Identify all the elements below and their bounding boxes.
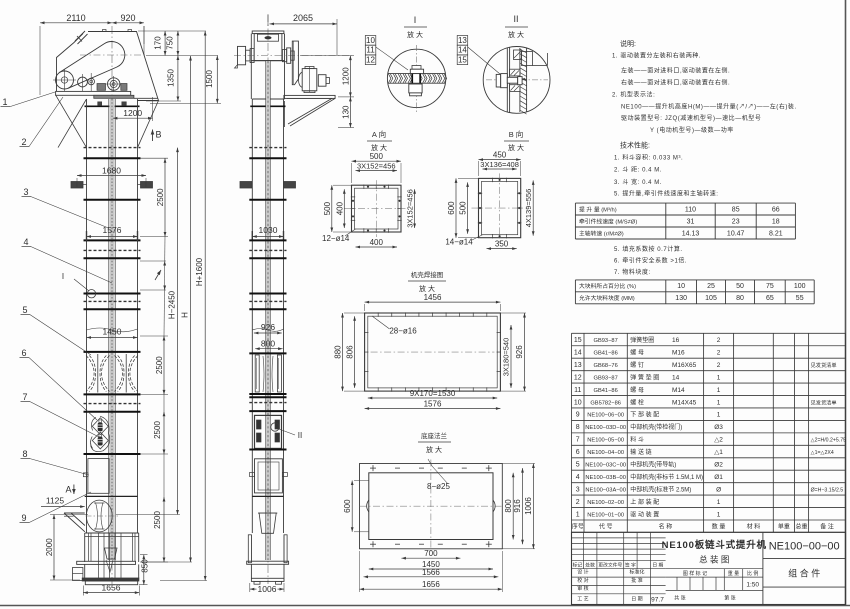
svg-text:总 装 图: 总 装 图 xyxy=(699,555,729,565)
svg-text:3X152=456: 3X152=456 xyxy=(405,189,414,228)
svg-text:1: 1 xyxy=(717,511,721,518)
svg-text:4: 4 xyxy=(23,237,28,247)
svg-text:设 计: 设 计 xyxy=(577,569,588,576)
svg-text:1: 1 xyxy=(717,499,721,506)
svg-text:签 字: 签 字 xyxy=(625,562,636,569)
svg-text:NE100−00−00: NE100−00−00 xyxy=(769,541,840,553)
svg-text:GB93−87: GB93−87 xyxy=(594,375,618,381)
svg-text:5. 填充系数按 0.7计算.: 5. 填充系数按 0.7计算. xyxy=(614,245,683,253)
svg-text:日 期: 日 期 xyxy=(652,563,663,569)
svg-text:3X136=408: 3X136=408 xyxy=(480,160,519,169)
svg-text:Ø=H−3.15/2.5: Ø=H−3.15/2.5 xyxy=(811,487,844,493)
svg-text:2500: 2500 xyxy=(155,356,164,374)
svg-text:下 部 装 配: 下 部 装 配 xyxy=(630,411,659,419)
svg-text:共 张: 共 张 xyxy=(674,595,685,602)
svg-text:1006: 1006 xyxy=(524,497,533,515)
svg-text:总重: 总重 xyxy=(796,523,808,531)
svg-text:16: 16 xyxy=(672,337,680,344)
svg-text:170: 170 xyxy=(154,36,163,50)
svg-text:2065: 2065 xyxy=(293,13,313,23)
svg-text:18: 18 xyxy=(772,218,780,225)
svg-text:日 期: 日 期 xyxy=(631,596,642,602)
svg-text:2110: 2110 xyxy=(66,13,85,23)
svg-text:放 大: 放 大 xyxy=(407,30,423,39)
svg-text:1656: 1656 xyxy=(102,582,121,592)
svg-text:11: 11 xyxy=(366,46,375,55)
svg-text:重 量: 重 量 xyxy=(728,570,739,577)
svg-text:NE100−03A−00: NE100−03A−00 xyxy=(585,487,625,493)
svg-text:1: 1 xyxy=(717,412,721,419)
svg-text:Ø: Ø xyxy=(716,486,721,493)
svg-text:13: 13 xyxy=(574,362,582,369)
svg-text:8: 8 xyxy=(576,424,580,431)
svg-text:螺 栓: 螺 栓 xyxy=(630,398,644,406)
svg-text:数 量: 数 量 xyxy=(712,523,726,531)
svg-text:主轴转速 (r/M≠Ø): 主轴转速 (r/M≠Ø) xyxy=(579,229,624,237)
svg-text:10: 10 xyxy=(574,399,582,406)
svg-text:底座法兰: 底座法兰 xyxy=(421,431,448,440)
svg-text:放 大: 放 大 xyxy=(508,143,524,152)
svg-text:Y (电动机型号)—级数—功率: Y (电动机型号)—级数—功率 xyxy=(650,126,734,134)
svg-text:处数: 处数 xyxy=(585,562,595,569)
svg-text:螺 钉: 螺 钉 xyxy=(630,361,644,369)
svg-text:驱 动 装 置: 驱 动 装 置 xyxy=(630,510,659,518)
svg-text:H: H xyxy=(181,312,190,318)
svg-text:916: 916 xyxy=(513,499,522,513)
svg-text:1: 1 xyxy=(2,97,7,107)
svg-text:4X139=556: 4X139=556 xyxy=(524,189,533,228)
svg-text:GB5782−86: GB5782−86 xyxy=(590,400,621,406)
svg-text:中部机壳(带检视门): 中部机壳(带检视门) xyxy=(630,423,682,431)
svg-text:5. 提升量,牵引件线速度和主轴转速:: 5. 提升量,牵引件线速度和主轴转速: xyxy=(614,189,718,197)
svg-text:130: 130 xyxy=(341,105,350,119)
svg-text:14: 14 xyxy=(672,374,680,381)
svg-text:80: 80 xyxy=(736,295,744,302)
svg-text:GB41−86: GB41−86 xyxy=(594,350,618,356)
svg-text:800: 800 xyxy=(261,339,275,349)
svg-text:1680: 1680 xyxy=(102,166,121,176)
svg-text:名 称: 名 称 xyxy=(659,523,673,531)
svg-text:上 部 装 配: 上 部 装 配 xyxy=(630,498,659,506)
svg-text:图 样 标 记: 图 样 标 记 xyxy=(683,570,707,577)
svg-text:M14: M14 xyxy=(672,387,685,394)
svg-text:1566: 1566 xyxy=(422,568,440,577)
svg-text:15: 15 xyxy=(574,337,582,344)
svg-text:1030: 1030 xyxy=(259,225,278,235)
svg-text:500: 500 xyxy=(370,152,384,161)
svg-text:926: 926 xyxy=(515,345,524,359)
svg-text:55: 55 xyxy=(796,295,804,302)
svg-text:750: 750 xyxy=(166,36,175,50)
svg-text:9X170=1530: 9X170=1530 xyxy=(410,389,456,398)
svg-text:6: 6 xyxy=(21,348,26,358)
svg-text:97.7: 97.7 xyxy=(651,596,664,603)
svg-text:600: 600 xyxy=(447,201,456,215)
svg-text:单重: 单重 xyxy=(778,523,790,531)
svg-text:11: 11 xyxy=(574,387,581,394)
svg-text:代 号: 代 号 xyxy=(599,523,613,531)
svg-text:75: 75 xyxy=(766,283,774,290)
svg-text:NE100板链斗式提升机: NE100板链斗式提升机 xyxy=(662,539,767,551)
svg-text:技术性能:: 技术性能: xyxy=(620,141,650,150)
svg-text:见发货清单: 见发货清单 xyxy=(811,361,837,369)
svg-text:见发货清单: 见发货清单 xyxy=(811,398,837,406)
svg-text:14: 14 xyxy=(574,349,582,356)
svg-text:926: 926 xyxy=(261,322,275,332)
svg-text:3. 斗 宽: 0.4 M.: 3. 斗 宽: 0.4 M. xyxy=(614,178,662,186)
svg-text:中部机壳(带导轨): 中部机壳(带导轨) xyxy=(630,460,676,468)
svg-text:校 对: 校 对 xyxy=(577,577,588,584)
svg-text:说明:: 说明: xyxy=(620,39,636,48)
svg-text:10: 10 xyxy=(366,36,375,45)
svg-text:△2: △2 xyxy=(714,437,723,444)
svg-text:I: I xyxy=(414,15,417,25)
svg-text:大块料所占百分比 (%): 大块料所占百分比 (%) xyxy=(579,282,636,290)
svg-text:放 大: 放 大 xyxy=(371,143,387,152)
svg-text:2500: 2500 xyxy=(153,421,162,439)
svg-text:2500: 2500 xyxy=(156,188,165,206)
svg-text:105: 105 xyxy=(705,295,717,302)
svg-text:螺 母: 螺 母 xyxy=(630,348,644,356)
svg-text:H+1600: H+1600 xyxy=(195,257,204,286)
svg-text:1: 1 xyxy=(717,374,721,381)
svg-text:66: 66 xyxy=(772,206,780,213)
svg-text:9: 9 xyxy=(576,412,580,419)
svg-text:920: 920 xyxy=(120,13,135,23)
svg-text:GB41−86: GB41−86 xyxy=(594,388,618,394)
svg-text:23: 23 xyxy=(732,218,740,225)
svg-text:10.47: 10.47 xyxy=(727,230,745,237)
svg-text:A: A xyxy=(65,485,71,495)
svg-text:I: I xyxy=(62,272,64,281)
svg-text:放 大: 放 大 xyxy=(426,445,442,454)
svg-text:8: 8 xyxy=(22,449,27,459)
svg-text:1200: 1200 xyxy=(341,67,350,85)
svg-text:14: 14 xyxy=(458,46,467,55)
svg-text:中部机壳(标准节 2.5M): 中部机壳(标准节 2.5M) xyxy=(630,485,691,493)
svg-text:1576: 1576 xyxy=(424,400,442,409)
svg-text:13: 13 xyxy=(458,36,467,45)
svg-text:1456: 1456 xyxy=(424,293,442,302)
svg-text:3: 3 xyxy=(23,187,28,197)
svg-text:NE100−02−00: NE100−02−00 xyxy=(587,500,624,506)
svg-text:1: 1 xyxy=(717,387,721,394)
svg-text:GB93−87: GB93−87 xyxy=(594,338,618,344)
svg-text:2: 2 xyxy=(576,499,580,506)
svg-text:放 大: 放 大 xyxy=(419,284,435,293)
svg-text:牵引件线速度 (M/S≠Ø): 牵引件线速度 (M/S≠Ø) xyxy=(579,217,637,225)
svg-text:组 合 件: 组 合 件 xyxy=(788,568,820,579)
svg-text:3X180=540: 3X180=540 xyxy=(502,338,511,377)
svg-text:GB68−76: GB68−76 xyxy=(594,363,618,369)
svg-text:85: 85 xyxy=(732,206,740,213)
svg-text:M16: M16 xyxy=(672,349,685,356)
svg-text:2. 斗 距: 0.4 M.: 2. 斗 距: 0.4 M. xyxy=(614,167,662,174)
svg-text:10: 10 xyxy=(677,283,685,290)
svg-text:NE100−03B−00: NE100−03B−00 xyxy=(585,475,625,481)
svg-text:NE100−03C−00: NE100−03C−00 xyxy=(585,462,626,468)
svg-text:3: 3 xyxy=(576,486,580,493)
svg-text:1350: 1350 xyxy=(167,69,176,87)
svg-text:△1=△2X4: △1=△2X4 xyxy=(811,450,834,456)
svg-text:机壳焊接图: 机壳焊接图 xyxy=(411,270,444,279)
svg-text:25: 25 xyxy=(707,283,715,290)
svg-text:1: 1 xyxy=(717,399,721,406)
svg-text:3X152=456: 3X152=456 xyxy=(357,162,396,171)
svg-text:2: 2 xyxy=(717,349,721,356)
svg-text:II: II xyxy=(298,431,302,440)
svg-text:M14X45: M14X45 xyxy=(672,399,697,406)
svg-text:序号: 序号 xyxy=(572,523,584,531)
svg-text:△1: △1 xyxy=(714,449,723,456)
svg-text:1125: 1125 xyxy=(46,496,65,506)
svg-text:比 例: 比 例 xyxy=(747,570,758,577)
svg-text:M16X65: M16X65 xyxy=(672,362,697,369)
svg-text:600: 600 xyxy=(343,499,352,513)
svg-text:31: 31 xyxy=(687,218,695,225)
svg-text:700: 700 xyxy=(424,549,438,558)
svg-text:提 升 量 (M³/h): 提 升 量 (M³/h) xyxy=(579,205,617,213)
svg-text:5: 5 xyxy=(22,305,27,315)
svg-text:中部机壳(非标节 1.5M,1 M): 中部机壳(非标节 1.5M,1 M) xyxy=(630,473,703,481)
svg-text:允许大块料块度 (MM): 允许大块料块度 (MM) xyxy=(579,294,635,302)
svg-text:H−2450: H−2450 xyxy=(168,290,177,319)
svg-text:12: 12 xyxy=(366,55,375,64)
svg-text:14−ø14: 14−ø14 xyxy=(445,238,473,247)
svg-text:2: 2 xyxy=(21,137,26,147)
svg-text:2: 2 xyxy=(717,362,721,369)
svg-text:NE100−04−00: NE100−04−00 xyxy=(587,450,624,456)
svg-text:7. 物料块度:: 7. 物料块度: xyxy=(614,268,651,276)
svg-text:Ø1: Ø1 xyxy=(714,474,723,481)
svg-text:B 向: B 向 xyxy=(509,129,524,139)
svg-text:450: 450 xyxy=(493,151,507,160)
svg-text:批 准: 批 准 xyxy=(631,577,642,584)
svg-text:1: 1 xyxy=(576,511,580,518)
svg-text:8.21: 8.21 xyxy=(769,230,783,237)
svg-text:备 注: 备 注 xyxy=(820,523,834,531)
svg-text:弹簧垫圈: 弹簧垫圈 xyxy=(630,336,654,344)
svg-text:弹 簧 垫 圈: 弹 簧 垫 圈 xyxy=(630,373,659,381)
svg-text:1450: 1450 xyxy=(103,327,122,337)
svg-text:7: 7 xyxy=(22,392,27,402)
svg-text:料 斗: 料 斗 xyxy=(630,436,644,444)
svg-text:NE100−05−00: NE100−05−00 xyxy=(587,438,624,444)
svg-text:标准化: 标准化 xyxy=(629,569,644,576)
svg-text:NE100−06−00: NE100−06−00 xyxy=(587,413,624,419)
svg-text:NE100−03D−00: NE100−03D−00 xyxy=(585,425,626,431)
svg-text:500: 500 xyxy=(323,201,332,215)
svg-text:500: 500 xyxy=(459,201,468,215)
svg-text:右装——面对进料口,驱动装置在右侧.: 右装——面对进料口,驱动装置在右侧. xyxy=(621,79,730,87)
svg-text:1656: 1656 xyxy=(422,580,440,589)
svg-text:材 料: 材 料 xyxy=(747,523,761,531)
svg-text:2500: 2500 xyxy=(153,511,162,529)
svg-text:审 核: 审 核 xyxy=(577,585,588,592)
svg-text:400: 400 xyxy=(335,201,344,215)
svg-text:第 张: 第 张 xyxy=(724,595,735,602)
svg-text:6. 牵引件安全系数 >1倍.: 6. 牵引件安全系数 >1倍. xyxy=(614,257,687,265)
svg-text:更改文件号: 更改文件号 xyxy=(598,562,622,569)
svg-text:驱动装置型号: JZQ(减速机型号)—速比—机型号: 驱动装置型号: JZQ(减速机型号)—速比—机型号 xyxy=(621,114,761,122)
svg-text:8−ø25: 8−ø25 xyxy=(427,482,450,491)
svg-text:NE100——提升机高度H(M)——提升量(↗/↗)——左(: NE100——提升机高度H(M)——提升量(↗/↗)——左(右)装. xyxy=(621,102,797,110)
svg-text:50: 50 xyxy=(736,283,744,290)
svg-text:NE100−01−00: NE100−01−00 xyxy=(587,512,624,518)
svg-text:Ø3: Ø3 xyxy=(714,424,723,431)
svg-text:65: 65 xyxy=(766,295,774,302)
svg-text:2. 机型表示法:: 2. 机型表示法: xyxy=(612,90,655,98)
svg-text:1. 驱动装置分左装和右装两种.: 1. 驱动装置分左装和右装两种. xyxy=(612,52,701,60)
svg-text:1200: 1200 xyxy=(123,108,142,118)
svg-text:标记: 标记 xyxy=(573,562,583,569)
svg-text:2000: 2000 xyxy=(45,538,54,556)
svg-text:850: 850 xyxy=(140,559,149,573)
svg-text:A 向: A 向 xyxy=(372,129,386,139)
svg-text:880: 880 xyxy=(334,345,343,359)
svg-text:输 送 链: 输 送 链 xyxy=(630,448,651,456)
svg-text:2: 2 xyxy=(717,337,721,344)
svg-text:806: 806 xyxy=(346,345,355,359)
svg-text:螺 母: 螺 母 xyxy=(630,386,644,394)
svg-text:350: 350 xyxy=(495,240,509,249)
svg-text:800: 800 xyxy=(504,499,513,513)
svg-text:B: B xyxy=(156,130,162,140)
svg-text:12: 12 xyxy=(574,374,582,381)
svg-text:9: 9 xyxy=(21,513,26,523)
svg-text:130: 130 xyxy=(675,295,687,302)
svg-text:工 艺: 工 艺 xyxy=(577,596,588,602)
svg-text:14.13: 14.13 xyxy=(682,230,700,237)
svg-text:1006: 1006 xyxy=(258,584,277,594)
svg-text:5: 5 xyxy=(576,461,580,468)
svg-text:6: 6 xyxy=(576,449,580,456)
svg-text:110: 110 xyxy=(685,206,696,213)
svg-text:1500: 1500 xyxy=(205,70,214,88)
svg-text:II: II xyxy=(513,14,518,24)
svg-text:15: 15 xyxy=(458,55,467,64)
svg-text:4: 4 xyxy=(576,474,580,481)
svg-text:1:50: 1:50 xyxy=(746,581,759,588)
svg-text:△2=H/0.2+5.75: △2=H/0.2+5.75 xyxy=(811,438,847,444)
svg-text:Ø2: Ø2 xyxy=(714,461,723,468)
svg-text:28−ø16: 28−ø16 xyxy=(389,327,417,336)
svg-text:100: 100 xyxy=(794,283,806,290)
svg-text:400: 400 xyxy=(370,238,384,247)
svg-text:7: 7 xyxy=(576,437,580,444)
svg-text:放 大: 放 大 xyxy=(508,30,524,39)
svg-text:1. 料斗容积: 0.033 M³.: 1. 料斗容积: 0.033 M³. xyxy=(614,154,683,162)
svg-text:左装——面对进料口,驱动装置在左侧.: 左装——面对进料口,驱动装置在左侧. xyxy=(621,67,730,75)
